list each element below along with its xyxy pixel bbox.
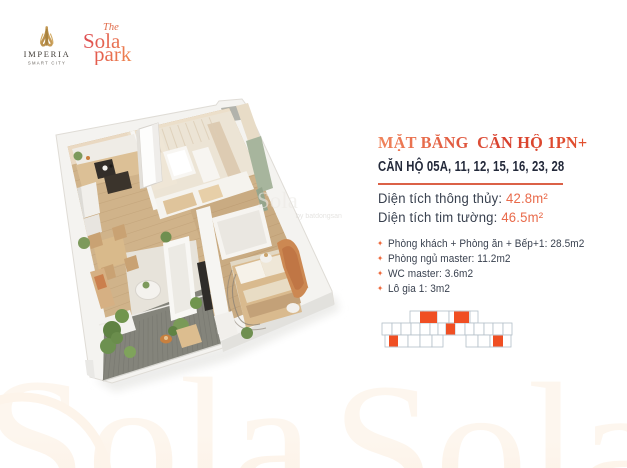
svg-text:Sola: Sola: [332, 346, 627, 468]
svg-text:Sola: Sola: [257, 188, 298, 213]
svg-text:by batdongsan: by batdongsan: [296, 213, 342, 220]
